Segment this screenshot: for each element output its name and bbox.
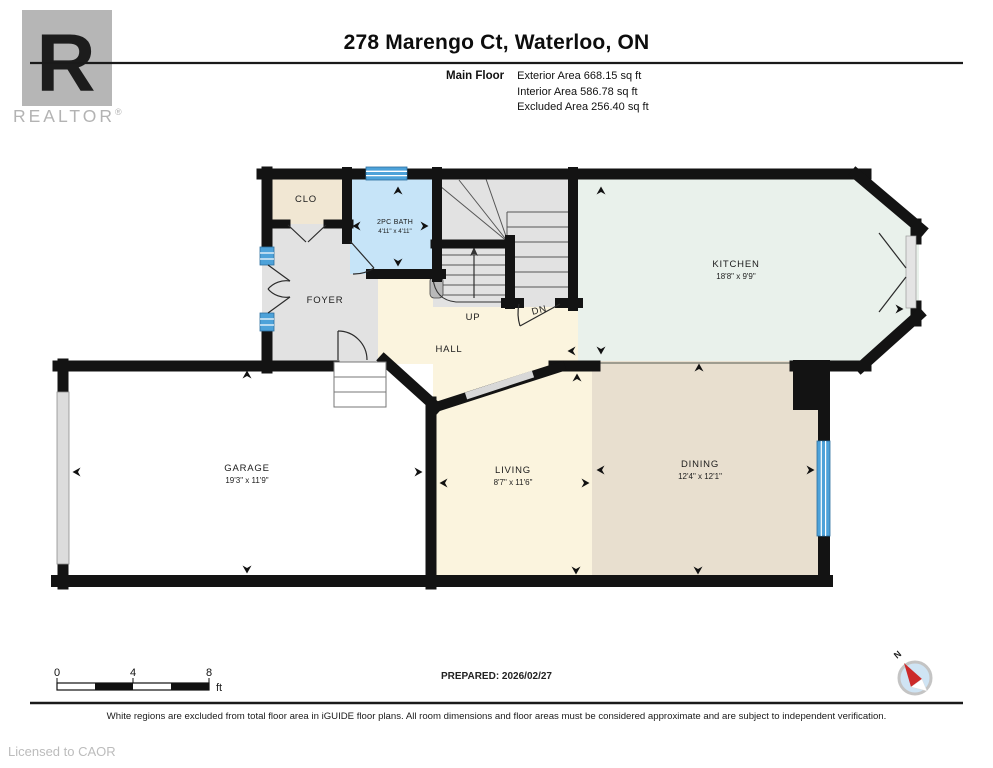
living-label: LIVING — [495, 465, 531, 476]
bath-dims: 4'11" x 4'11" — [378, 228, 412, 235]
foyer-label: FOYER — [307, 295, 344, 306]
scale-unit-label: ft — [216, 682, 222, 694]
stairs-up-label: UP — [466, 312, 481, 323]
foyer-window-lower — [260, 313, 274, 331]
registered-mark: ® — [115, 107, 122, 117]
dining-label: DINING — [681, 459, 719, 470]
realtor-brand-text: REALTOR — [13, 106, 115, 126]
page-title: 278 Marengo Ct, Waterloo, ON — [0, 31, 993, 55]
prepared-date: PREPARED: 2026/02/27 — [0, 671, 993, 682]
foyer-window-upper — [260, 247, 274, 265]
garage-door — [57, 392, 69, 564]
dining-window — [817, 441, 830, 536]
room-kitchen — [578, 174, 919, 366]
floorplan-page: R — [0, 0, 993, 768]
garage-dims: 19'3" x 11'9" — [225, 476, 268, 485]
floor-summary: Main Floor Exterior Area 668.15 sq ft In… — [446, 69, 649, 116]
garage-label: GARAGE — [224, 463, 269, 474]
realtor-logo: R — [22, 10, 112, 109]
bath-label: 2PC BATH — [377, 219, 413, 226]
disclaimer-text: White regions are excluded from total fl… — [0, 711, 993, 722]
kitchen-dims: 18'8" x 9'9" — [716, 272, 756, 281]
hall-label: HALL — [436, 344, 463, 355]
clo-label: CLO — [295, 194, 317, 205]
excluded-area-line: Excluded Area 256.40 sq ft — [517, 100, 648, 116]
living-dims: 8'7" x 11'6" — [494, 478, 533, 487]
garage-steps — [334, 362, 386, 407]
kitchen-label: KITCHEN — [712, 259, 759, 270]
interior-area-line: Interior Area 586.78 sq ft — [517, 85, 648, 101]
exterior-area-line: Exterior Area 668.15 sq ft — [517, 69, 648, 85]
room-fills — [60, 174, 919, 583]
realtor-wordmark: REALTOR® — [13, 106, 122, 127]
compass-north-label: N — [892, 649, 903, 661]
license-text: Licensed to CAOR — [8, 744, 116, 759]
bath-window — [366, 167, 407, 180]
dining-dims: 12'4" x 12'1" — [678, 472, 722, 481]
floor-areas: Exterior Area 668.15 sq ft Interior Area… — [517, 69, 648, 116]
floor-label: Main Floor — [446, 69, 504, 116]
